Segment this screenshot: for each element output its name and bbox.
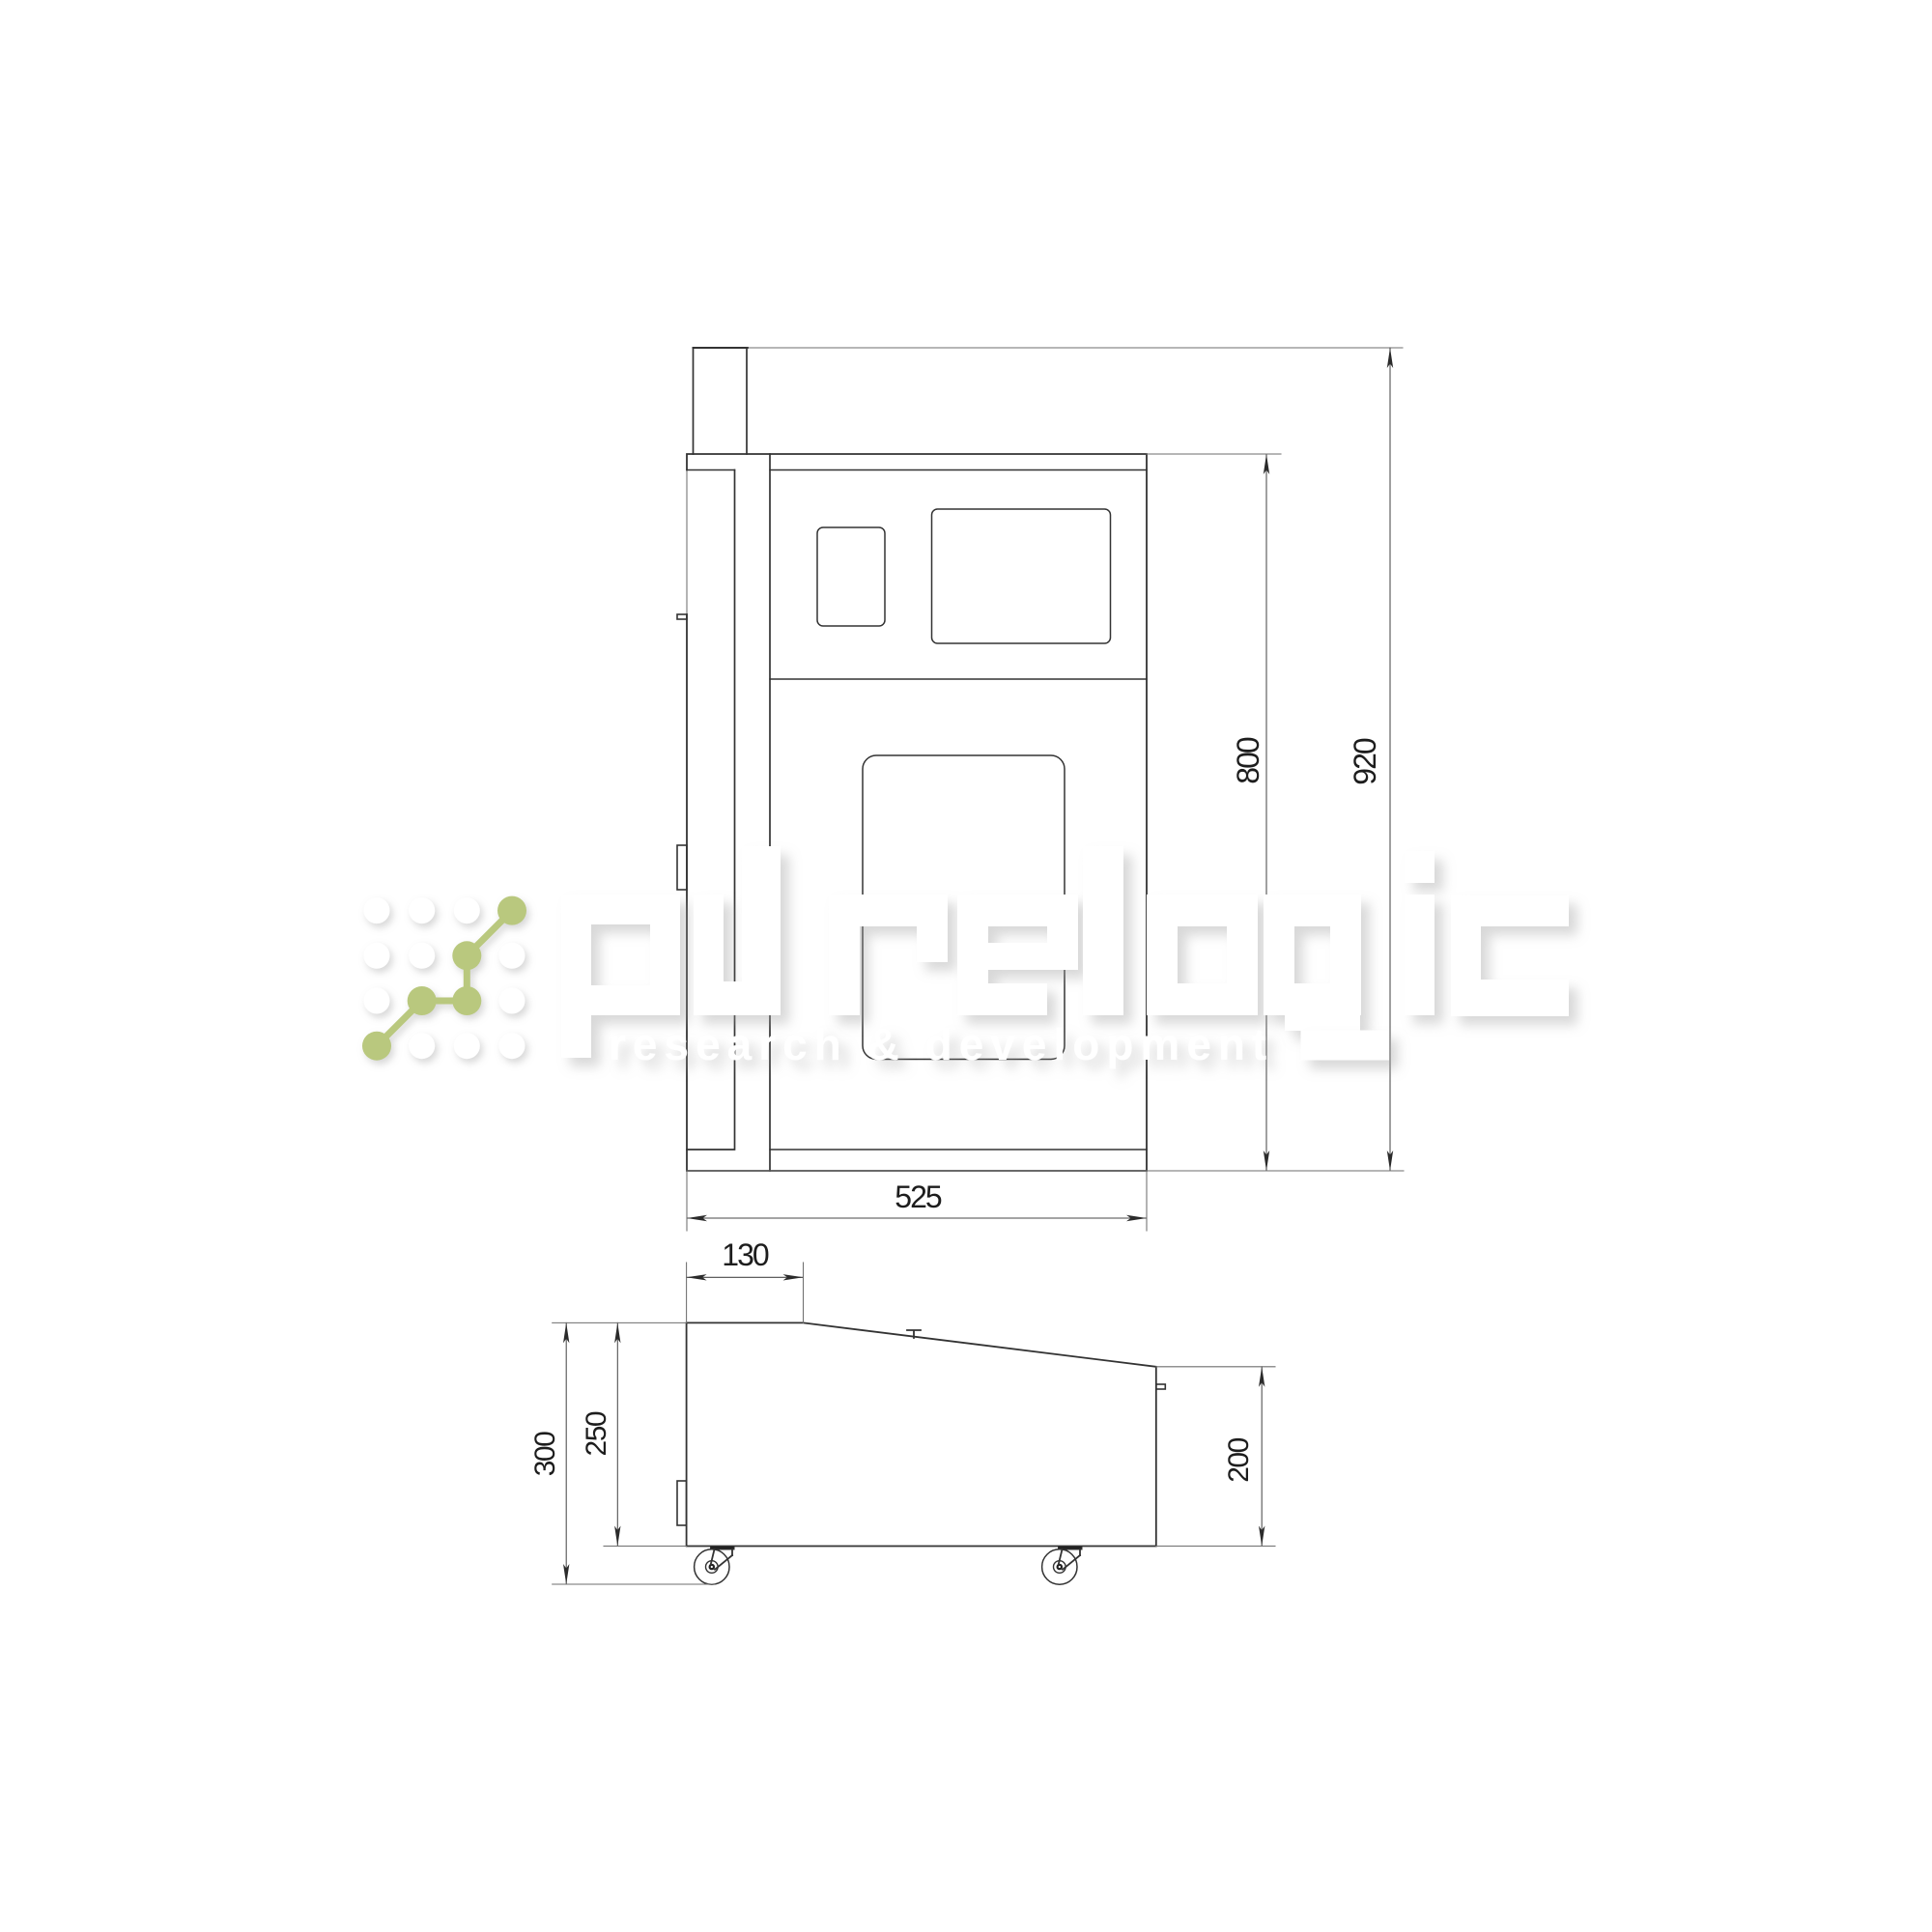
svg-text:920: 920 bbox=[1348, 738, 1382, 785]
svg-text:300: 300 bbox=[529, 1432, 561, 1476]
svg-text:research & development: research & development bbox=[609, 1019, 1273, 1069]
svg-text:800: 800 bbox=[1231, 737, 1265, 784]
svg-text:200: 200 bbox=[1223, 1437, 1255, 1482]
svg-text:130: 130 bbox=[722, 1237, 769, 1272]
svg-text:525: 525 bbox=[895, 1179, 942, 1214]
svg-text:250: 250 bbox=[581, 1411, 612, 1456]
